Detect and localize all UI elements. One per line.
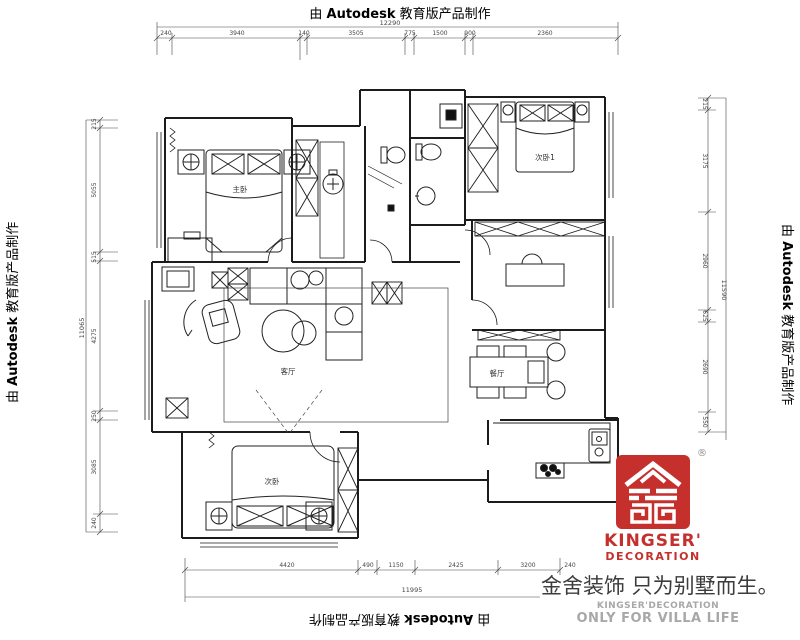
dining-room-label: 餐厅: [490, 369, 505, 378]
dim-top-total: 12290: [380, 19, 401, 27]
door-arcs: [268, 230, 497, 462]
kingser-logo-subtitle: DECORATION: [598, 550, 708, 563]
sofa: [250, 268, 362, 360]
washbasin-2: [417, 187, 435, 205]
dim-right-total: 11590: [720, 280, 728, 301]
svg-text:215: 215: [91, 118, 98, 130]
svg-text:550: 550: [701, 416, 708, 428]
brand-subtext-en-1: KINGSER'DECORATION: [545, 601, 771, 611]
bedroom2-label: 次卧: [265, 476, 280, 486]
master-bedroom-label: 主卧: [233, 184, 248, 194]
kingser-logo-emblem: [616, 455, 690, 529]
svg-text:1500: 1500: [432, 30, 447, 37]
dining-table: [470, 343, 565, 399]
toilet: [381, 147, 387, 163]
svg-text:5055: 5055: [91, 182, 98, 197]
brand-subtext-en-2: ONLY FOR VILLA LIFE: [545, 611, 771, 626]
living-room-label: 客厅: [281, 366, 296, 376]
living-rug: [224, 288, 448, 434]
dim-bottom-total: 11995: [402, 586, 423, 594]
svg-text:140: 140: [298, 30, 310, 37]
study-desk: [506, 254, 564, 286]
svg-text:3505: 3505: [348, 30, 363, 37]
kingser-logo: [616, 455, 690, 529]
svg-text:900: 900: [464, 30, 476, 37]
armchair: [184, 299, 242, 346]
registered-mark: ®: [697, 448, 707, 459]
kitchen-counter: [493, 423, 610, 478]
svg-text:215: 215: [701, 98, 708, 110]
svg-text:240: 240: [564, 562, 576, 569]
svg-text:3085: 3085: [91, 459, 98, 474]
svg-text:2960: 2960: [701, 253, 708, 268]
svg-text:3175: 3175: [701, 153, 708, 168]
svg-text:1150: 1150: [388, 562, 403, 569]
svg-text:4420: 4420: [279, 562, 294, 569]
svg-text:2360: 2360: [537, 30, 552, 37]
kingser-logo-name: KINGSER': [598, 531, 708, 551]
svg-text:3940: 3940: [229, 30, 244, 37]
svg-text:2690: 2690: [701, 359, 708, 374]
bedroom1-label: 次卧1: [535, 152, 555, 162]
svg-text:4275: 4275: [91, 328, 98, 343]
dimension-top: [154, 22, 621, 60]
dim-left-total: 11065: [78, 318, 86, 339]
svg-text:240: 240: [160, 30, 172, 37]
svg-text:3200: 3200: [520, 562, 535, 569]
shower-screen: [368, 166, 402, 184]
svg-text:240: 240: [91, 517, 98, 529]
svg-text:625: 625: [701, 310, 708, 322]
svg-text:490: 490: [362, 562, 374, 569]
radiator-zigzag: [170, 128, 175, 152]
radiator-zigzag-2: [209, 432, 214, 448]
coffee-table: [262, 310, 316, 352]
svg-text:515: 515: [91, 251, 98, 263]
bathroom-fixtures: [320, 104, 462, 258]
bedroom2-bed: [206, 446, 334, 530]
floor-drain: [388, 205, 394, 211]
master-bed: [178, 150, 310, 252]
brand-slogan: 金舍装饰 只为别墅而生。: [541, 570, 797, 600]
svg-text:2425: 2425: [448, 562, 463, 569]
svg-text:250: 250: [91, 410, 98, 422]
svg-text:775: 775: [404, 30, 416, 37]
